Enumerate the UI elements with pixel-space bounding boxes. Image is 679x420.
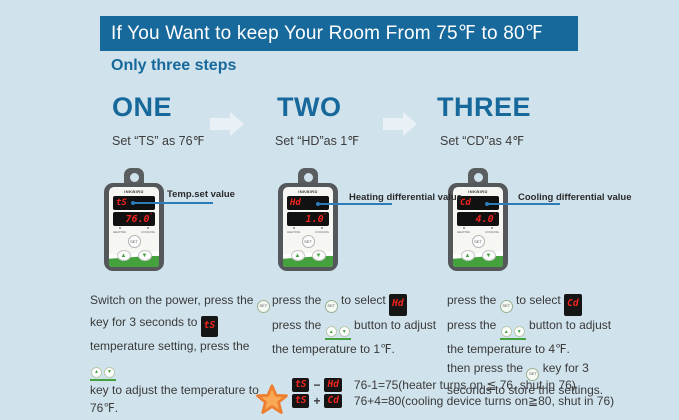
formula-heater: tS − Hd 76-1=75(heater turns on ≦ 76, sh…: [292, 378, 576, 392]
display-chip-cd: Cd: [324, 394, 341, 408]
bottom-display: 76.0°: [113, 212, 155, 226]
set-button-icon: SET: [257, 300, 270, 313]
up-button: ▲: [117, 250, 131, 261]
callout-pointer-line: [318, 203, 392, 205]
down-button: ▼: [312, 250, 326, 261]
set-button-icon: SET: [325, 300, 338, 313]
callout-temp-set-value: Temp.set value: [167, 189, 235, 200]
display-chip-ts: tS: [292, 394, 309, 408]
right-arrow-icon: [210, 112, 246, 136]
callout-pointer-line: [487, 203, 560, 205]
bottom-display: 4.0°: [457, 212, 499, 226]
header-subtitle: Only three steps: [111, 57, 236, 75]
up-button: ▲: [461, 250, 475, 261]
instructions-step-two: press the SET to select Hd press the ▲▼ …: [272, 291, 448, 359]
down-button: ▼: [138, 250, 152, 261]
header-banner: If You Want to keep Your Room From 75℉ t…: [100, 16, 578, 51]
display-chip-hd: Hd: [389, 294, 406, 316]
cooling-indicator: COOLING: [485, 227, 499, 234]
step-two-caption: Set “HD”as 1℉: [275, 133, 359, 148]
infographic-canvas: If You Want to keep Your Room From 75℉ t…: [0, 0, 679, 420]
star-icon: [255, 383, 289, 416]
device-brand: INKBIRD: [124, 189, 143, 194]
step-one-heading: ONE: [112, 92, 172, 123]
step-one-caption: Set “TS” as 76℉: [112, 133, 204, 148]
heating-indicator: HEATING: [457, 227, 470, 234]
formula-cooler: tS + Cd 76+4=80(cooling device turns on≧…: [292, 394, 614, 408]
up-button: ▲: [291, 250, 305, 261]
display-chip-ts: tS: [201, 316, 218, 338]
callout-cooling-differential: Cooling differential value: [518, 192, 632, 203]
device-brand: INKBIRD: [468, 189, 487, 194]
step-three-heading: THREE: [437, 92, 531, 123]
thermostat-device-one: INKBIRD tS 76.0° HEATING COOLING SET ▲ ▼: [104, 168, 164, 271]
set-button: SET: [302, 235, 315, 248]
cooling-indicator: COOLING: [141, 227, 155, 234]
set-button-icon: SET: [500, 300, 513, 313]
device-brand: INKBIRD: [298, 189, 317, 194]
display-chip-cd: Cd: [564, 294, 581, 316]
display-chip-hd: Hd: [324, 378, 341, 392]
callout-pointer-line: [133, 202, 213, 204]
down-button: ▼: [482, 250, 496, 261]
thermostat-device-two: INKBIRD Hd 1.0° HEATING COOLING SET ▲ ▼: [278, 168, 338, 271]
up-down-buttons-icon: ▲▼: [500, 326, 526, 340]
step-three-caption: Set “CD”as 4℉: [440, 133, 524, 148]
step-two-heading: TWO: [277, 92, 341, 123]
instructions-step-one: Switch on the power, press the SET key f…: [90, 291, 272, 418]
heating-indicator: HEATING: [113, 227, 126, 234]
set-button: SET: [128, 235, 141, 248]
display-chip-ts: tS: [292, 378, 309, 392]
bottom-display: 1.0°: [287, 212, 329, 226]
thermostat-device-three: INKBIRD Cd 4.0° HEATING COOLING SET ▲ ▼: [448, 168, 508, 271]
set-button: SET: [472, 235, 485, 248]
heating-indicator: HEATING: [287, 227, 300, 234]
right-arrow-icon: [383, 112, 419, 136]
up-down-buttons-icon: ▲▼: [325, 326, 351, 340]
up-down-buttons-icon: ▲▼: [90, 367, 116, 381]
callout-heating-differential: Heating differential value: [349, 192, 462, 203]
cooling-indicator: COOLING: [315, 227, 329, 234]
